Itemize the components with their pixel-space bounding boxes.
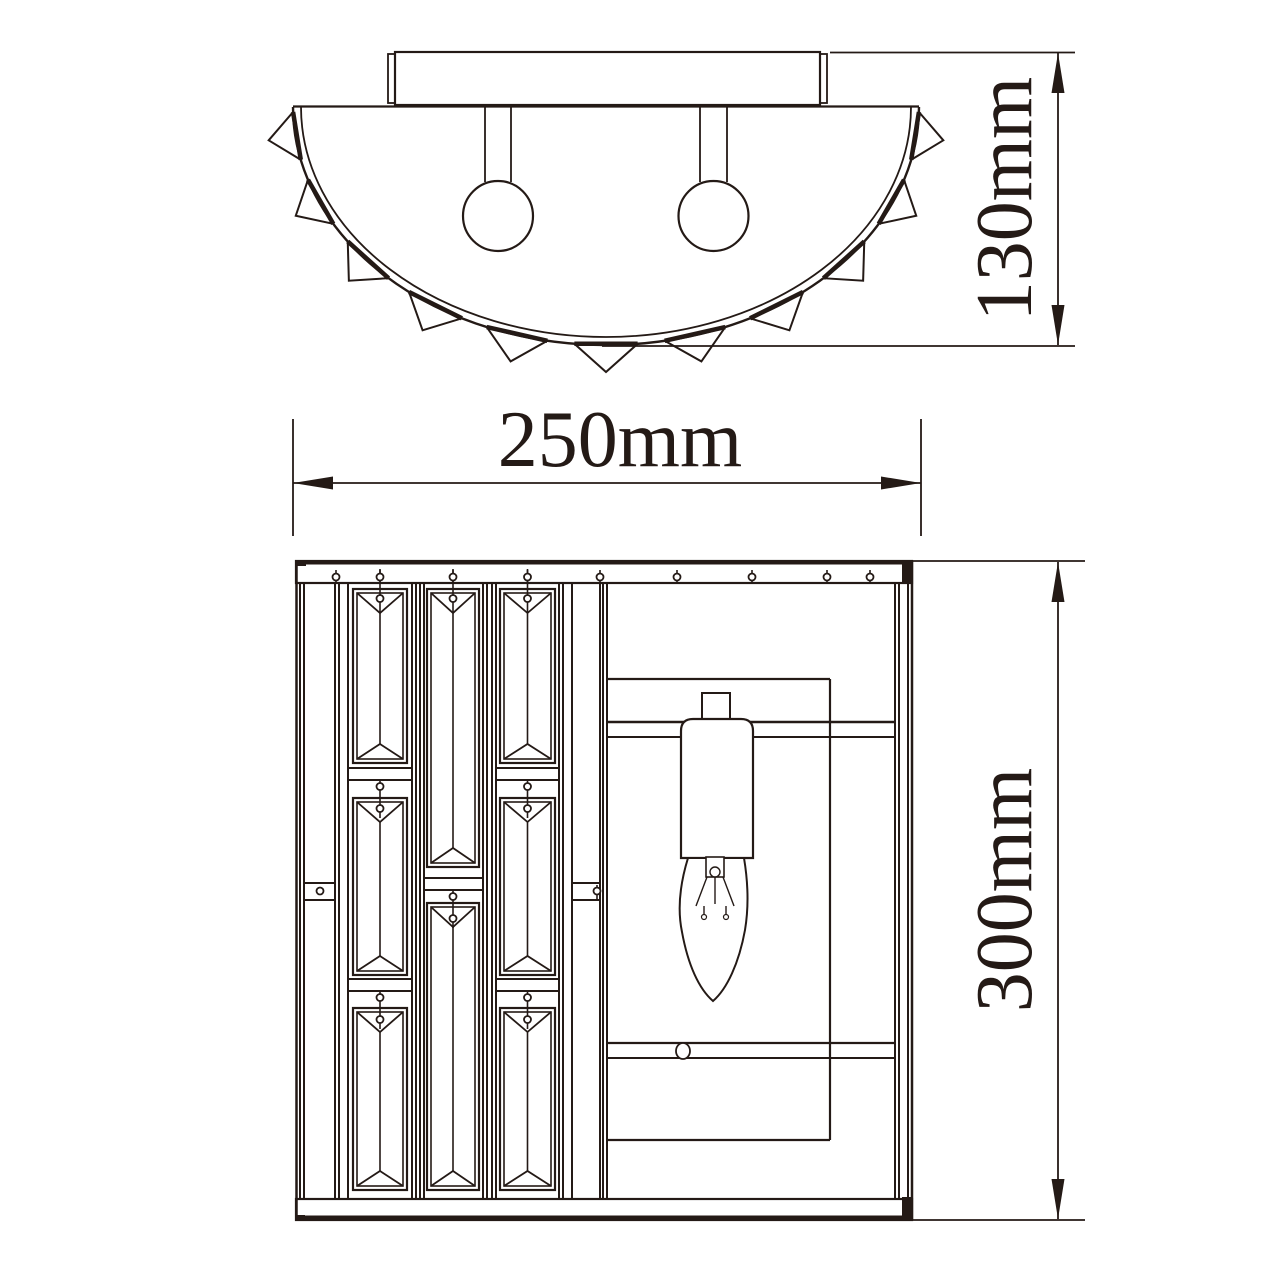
dimension-label-300mm: 300mm [961, 768, 1049, 1012]
glass-bowl-group [293, 107, 919, 346]
technical-drawing: 130mm 250mm 300mm [0, 0, 1280, 1280]
mounting-plate-group [388, 52, 827, 105]
top-view [269, 52, 944, 372]
crystal-trim-group [269, 112, 944, 372]
dimension-width: 250mm [293, 396, 921, 536]
dimension-label-130mm: 130mm [961, 77, 1049, 321]
front-view [296, 561, 912, 1221]
dimension-height-front: 300mm [912, 561, 1085, 1220]
lamp-assembly-group [607, 679, 895, 1140]
screw-group [333, 570, 874, 584]
dimension-height-top: 130mm [602, 53, 1075, 347]
bulb-holder-group [463, 107, 749, 251]
frame-group [296, 561, 912, 1221]
dimension-label-250mm: 250mm [498, 396, 742, 484]
